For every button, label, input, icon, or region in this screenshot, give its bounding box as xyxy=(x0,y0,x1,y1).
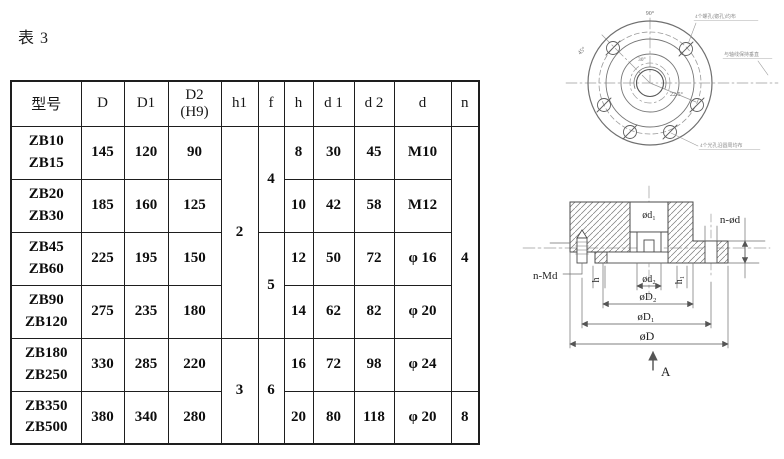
cell-model: ZB350 ZB500 xyxy=(11,391,81,444)
cell-D: 380 xyxy=(81,391,124,444)
cell-D2: 90 xyxy=(168,126,221,179)
model-line: ZB120 xyxy=(12,312,81,334)
cell-d2: 118 xyxy=(354,391,394,444)
cell-d1: 50 xyxy=(313,232,354,285)
cell-D1: 235 xyxy=(124,285,168,338)
col-header-d: d xyxy=(394,81,451,126)
cell-model: ZB10 ZB15 xyxy=(11,126,81,179)
D1-dim-label: øD₁ xyxy=(637,311,654,323)
model-line: ZB30 xyxy=(12,206,81,228)
cell-d2: 72 xyxy=(354,232,394,285)
col-header-D1: D1 xyxy=(124,81,168,126)
cell-D2: 180 xyxy=(168,285,221,338)
flange-front-view-drawing: 90° 45° 30° 22.5° 4个螺孔(锪孔)均布 与轴线保持垂直 4个光… xyxy=(560,5,784,165)
annotation-bolt-holes: 4个螺孔(锪孔)均布 xyxy=(695,13,736,20)
angle-label-30: 30° xyxy=(638,56,646,63)
cell-d: φ 20 xyxy=(394,285,451,338)
model-line: ZB180 xyxy=(12,343,81,365)
table-row: ZB10 ZB15 145 120 90 2 4 8 30 45 M10 4 xyxy=(11,126,479,179)
spec-table: 型号 D D1 D2 (H9) h1 f h d 1 d 2 d n ZB10 xyxy=(10,80,480,445)
model-line: ZB60 xyxy=(12,259,81,281)
cell-D2: 125 xyxy=(168,179,221,232)
cell-d1: 30 xyxy=(313,126,354,179)
cell-h: 10 xyxy=(284,179,313,232)
h1-dim-label: h₁ xyxy=(674,276,685,285)
cell-D2: 150 xyxy=(168,232,221,285)
cell-h1-merged: 2 xyxy=(221,126,258,338)
cell-d: φ 24 xyxy=(394,338,451,391)
model-line: ZB45 xyxy=(12,237,81,259)
cell-n-merged: 4 xyxy=(451,126,479,391)
cell-D1: 195 xyxy=(124,232,168,285)
cell-D1: 120 xyxy=(124,126,168,179)
cell-D: 275 xyxy=(81,285,124,338)
bore-diameter-label: ød₁ xyxy=(642,210,656,221)
annotation-thru-holes: 4个光孔沿圆周均布 xyxy=(700,142,743,149)
cell-D: 185 xyxy=(81,179,124,232)
cell-D2: 220 xyxy=(168,338,221,391)
cell-f-merged: 4 xyxy=(258,126,284,232)
angle-label-22-5: 22.5° xyxy=(670,91,684,98)
cell-h: 16 xyxy=(284,338,313,391)
cell-D: 330 xyxy=(81,338,124,391)
table-title: 表 3 xyxy=(18,24,49,48)
cell-h: 8 xyxy=(284,126,313,179)
cell-f-merged: 6 xyxy=(258,338,284,444)
cell-model: ZB180 ZB250 xyxy=(11,338,81,391)
cell-model: ZB45 ZB60 xyxy=(11,232,81,285)
cell-d: φ 16 xyxy=(394,232,451,285)
col-header-D: D xyxy=(81,81,124,126)
cell-h1-merged: 3 xyxy=(221,338,258,444)
cell-h: 20 xyxy=(284,391,313,444)
angle-label-45: 45° xyxy=(576,45,587,56)
table-row: ZB180 ZB250 330 285 220 3 6 16 72 98 φ 2… xyxy=(11,338,479,391)
model-line: ZB10 xyxy=(12,131,81,153)
cell-d2: 45 xyxy=(354,126,394,179)
cell-d2: 58 xyxy=(354,179,394,232)
cell-d: φ 20 xyxy=(394,391,451,444)
view-direction-label: A xyxy=(661,364,671,379)
col-header-D2-line1: D2 xyxy=(169,87,221,104)
cell-D: 145 xyxy=(81,126,124,179)
cell-d: M12 xyxy=(394,179,451,232)
tapped-hole-label: n-Md xyxy=(533,270,558,282)
model-line: ZB15 xyxy=(12,153,81,175)
annotation-datum: 与轴线保持垂直 xyxy=(724,51,759,58)
col-header-d2: d 2 xyxy=(354,81,394,126)
model-line: ZB350 xyxy=(12,396,81,418)
cell-d1: 42 xyxy=(313,179,354,232)
bolt-hole-label: n-ød xyxy=(720,214,741,226)
col-header-h1: h1 xyxy=(221,81,258,126)
cell-h: 12 xyxy=(284,232,313,285)
model-line: ZB20 xyxy=(12,184,81,206)
cell-D: 225 xyxy=(81,232,124,285)
col-header-d1: d 1 xyxy=(313,81,354,126)
cell-f-merged: 5 xyxy=(258,232,284,338)
cell-d1: 62 xyxy=(313,285,354,338)
col-header-D2-line2: (H9) xyxy=(169,104,221,121)
cell-d: M10 xyxy=(394,126,451,179)
cell-d1: 72 xyxy=(313,338,354,391)
col-header-model: 型号 xyxy=(11,81,81,126)
cell-d1: 80 xyxy=(313,391,354,444)
D-dim-label: øD xyxy=(640,329,655,343)
model-line: ZB500 xyxy=(12,417,81,439)
cell-n: 8 xyxy=(451,391,479,444)
col-header-f: f xyxy=(258,81,284,126)
cell-h: 14 xyxy=(284,285,313,338)
col-header-D2: D2 (H9) xyxy=(168,81,221,126)
h-dim-label: h xyxy=(591,278,602,283)
col-header-n: n xyxy=(451,81,479,126)
cell-D2: 280 xyxy=(168,391,221,444)
cell-D1: 160 xyxy=(124,179,168,232)
D2-dim-label: øD₂ xyxy=(639,291,656,303)
model-line: ZB90 xyxy=(12,290,81,312)
cell-D1: 285 xyxy=(124,338,168,391)
flange-section-view-drawing: ød₁ n-ød n-Md h ød₂ h₁ øD₂ øD₁ øD A xyxy=(515,178,784,393)
cell-model: ZB20 ZB30 xyxy=(11,179,81,232)
cell-D1: 340 xyxy=(124,391,168,444)
model-line: ZB250 xyxy=(12,365,81,387)
cell-model: ZB90 ZB120 xyxy=(11,285,81,338)
cell-d2: 82 xyxy=(354,285,394,338)
col-header-h: h xyxy=(284,81,313,126)
table-header-row: 型号 D D1 D2 (H9) h1 f h d 1 d 2 d n xyxy=(11,81,479,126)
d2-dim-label: ød₂ xyxy=(642,274,656,285)
angle-label-90: 90° xyxy=(646,10,655,17)
manual-page: 表 3 型号 D D1 D2 (H9) h1 f h d 1 d 2 d xyxy=(0,0,784,459)
cell-d2: 98 xyxy=(354,338,394,391)
